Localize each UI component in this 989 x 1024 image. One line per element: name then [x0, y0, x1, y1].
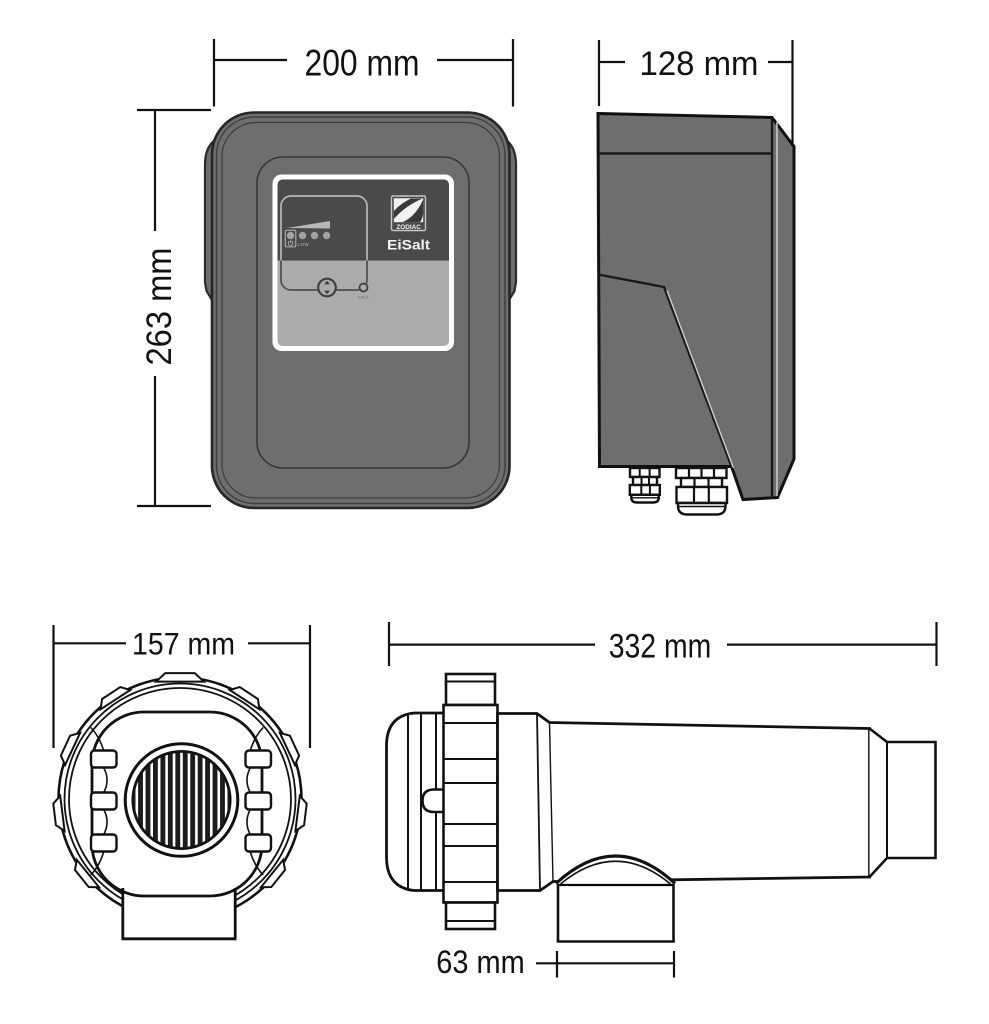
svg-text:263 mm: 263 mm [139, 248, 179, 366]
svg-text:157 mm: 157 mm [132, 626, 235, 662]
svg-text:ZODIAC: ZODIAC [396, 224, 421, 231]
svg-text:LOW: LOW [298, 242, 310, 247]
svg-text:200 mm: 200 mm [305, 42, 420, 84]
svg-text:128 mm: 128 mm [640, 45, 759, 83]
svg-text:EiSalt: EiSalt [387, 237, 430, 252]
svg-text:SALT: SALT [358, 295, 369, 300]
svg-text:63 mm: 63 mm [436, 944, 525, 980]
svg-text:332 mm: 332 mm [609, 628, 712, 666]
